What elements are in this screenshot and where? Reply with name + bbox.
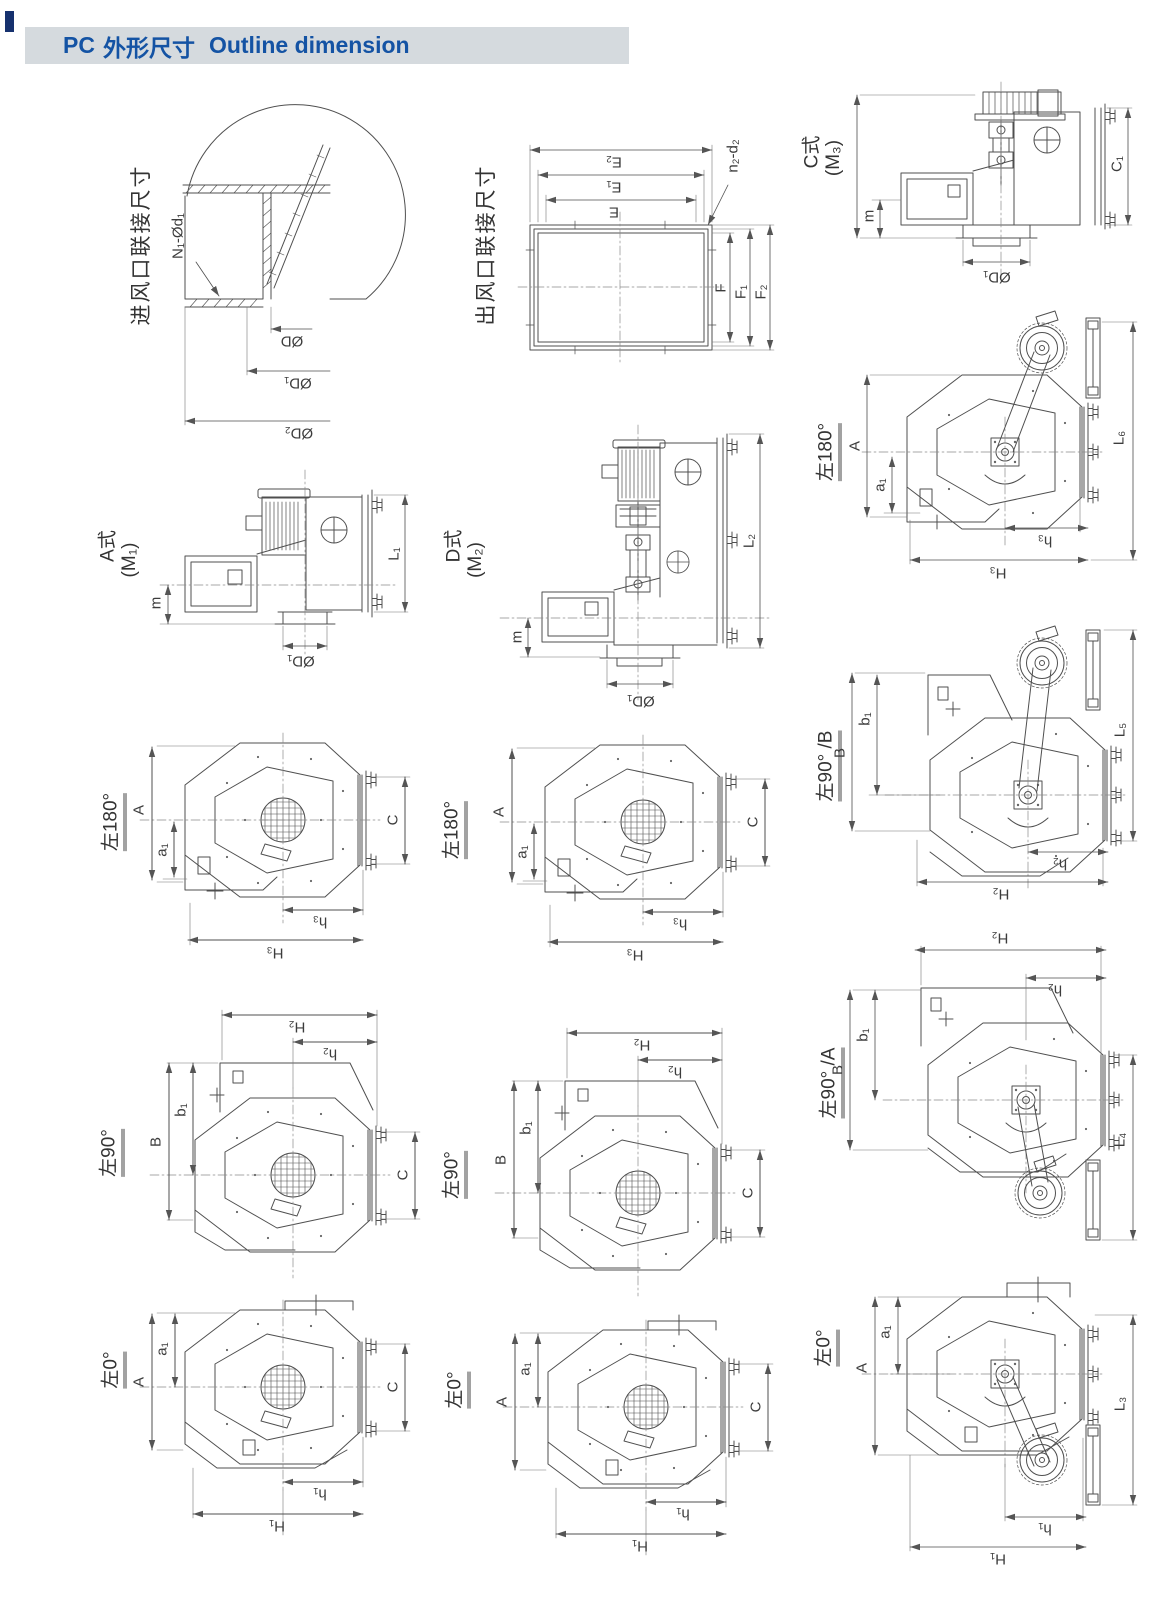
- diagram-left180-front-2: [500, 735, 770, 947]
- diagram-title: 左180°: [811, 423, 842, 481]
- dim-label: h₁: [313, 1486, 326, 1503]
- diagram-type-a: [160, 470, 408, 655]
- dim-label: h₃: [1038, 533, 1052, 550]
- diagram-left90-belt-a: [850, 946, 1137, 1240]
- dim-label: L₅: [1112, 723, 1129, 737]
- dim-label: E₂: [606, 154, 622, 171]
- diagram-subtitle: (M₃): [823, 140, 845, 176]
- dim-label: C: [740, 1188, 757, 1199]
- diagram-title: 左0°: [96, 1351, 127, 1388]
- diagram-title: A式: [93, 530, 120, 562]
- dim-label: a₁: [872, 478, 889, 491]
- dim-label: H₂: [993, 886, 1010, 903]
- dim-label: H₁: [632, 1538, 648, 1555]
- diagram-title: 左90° /A: [814, 1048, 845, 1119]
- dim-label: h₂: [1053, 856, 1067, 873]
- dim-label: m: [509, 631, 526, 644]
- dim-label: L₃: [1112, 1397, 1129, 1411]
- dim-label: H₁: [269, 1518, 285, 1535]
- dim-label: a₁: [514, 845, 531, 858]
- dim-label: ØD₁: [284, 375, 312, 392]
- dim-label: C: [385, 815, 402, 826]
- dim-label: B: [830, 1065, 847, 1075]
- dim-label: L₄: [1112, 1133, 1129, 1147]
- dim-label: h₁: [676, 1506, 689, 1523]
- dim-label: N₁-Ød₁: [170, 213, 187, 259]
- diagram-title: D式: [439, 530, 466, 563]
- diagram-title: C式: [797, 136, 824, 169]
- dim-label: b₁: [173, 1103, 190, 1116]
- dim-label: H₁: [990, 1551, 1006, 1568]
- dim-label: a₁: [154, 1342, 171, 1355]
- dim-label: h₂: [668, 1064, 682, 1081]
- dim-label: a₁: [154, 843, 171, 856]
- dim-label: A: [131, 805, 148, 815]
- dim-label: a₁: [877, 1325, 894, 1338]
- dim-label: h₃: [313, 914, 327, 931]
- dim-label: b₁: [518, 1121, 535, 1134]
- diagram-left0-front-1: [140, 1295, 410, 1535]
- dim-label: h₂: [323, 1046, 337, 1063]
- dim-label: a₁: [517, 1362, 534, 1375]
- dim-label: m: [861, 210, 878, 223]
- catalog-page: PC 外形尺寸 Outline dimension: [0, 0, 1174, 1600]
- dim-label: F₁: [733, 285, 750, 299]
- dim-label: ØD₁: [627, 693, 655, 710]
- dim-label: b₁: [855, 1028, 872, 1041]
- dim-label: L₁: [386, 547, 403, 560]
- dim-label: H₃: [627, 947, 644, 964]
- diagram-left180-belt: [862, 311, 1137, 564]
- dim-label: H₂: [992, 930, 1009, 947]
- diagram-title: 左0°: [809, 1329, 840, 1366]
- dim-label: h₂: [1048, 982, 1062, 999]
- diagram-left0-front-2: [503, 1315, 773, 1555]
- diagram-title: 左90°: [94, 1129, 125, 1177]
- diagram-subtitle: (M₂): [465, 542, 487, 578]
- dim-label: ØD₁: [983, 269, 1011, 286]
- dim-label: E: [609, 204, 619, 221]
- dim-label: H₂: [634, 1037, 651, 1054]
- diagram-title: 左90° /B: [811, 731, 842, 802]
- diagram-left90-front-1: [150, 1010, 420, 1278]
- diagram-title: 左0°: [440, 1371, 471, 1408]
- dim-label: H₂: [289, 1019, 306, 1036]
- diagram-title: 出风口联接尺寸: [470, 165, 500, 326]
- dim-label: C: [395, 1170, 412, 1181]
- dim-label: A: [847, 441, 864, 451]
- dim-label: n₂-d₂: [725, 139, 742, 172]
- dim-label: C: [748, 1402, 765, 1413]
- dim-label: ØD₁: [287, 653, 315, 670]
- diagram-title: 进风口联接尺寸: [125, 165, 155, 326]
- dim-label: b₁: [857, 712, 874, 725]
- dim-label: h₃: [673, 916, 687, 933]
- diagram-left90-belt-b: [852, 626, 1137, 890]
- dim-label: A: [131, 1377, 148, 1387]
- dim-label: B: [493, 1155, 510, 1165]
- dim-label: L₂: [741, 534, 758, 548]
- dim-label: C: [385, 1382, 402, 1393]
- diagram-title: 左90°: [437, 1151, 468, 1199]
- dim-label: C: [745, 817, 762, 828]
- dim-label: F: [713, 283, 730, 292]
- dim-label: ØD: [281, 333, 304, 350]
- diagram-subtitle: (M₁): [119, 543, 141, 578]
- dim-label: F₂: [753, 285, 770, 300]
- diagram-left180-front-1: [140, 733, 410, 945]
- diagram-left0-belt: [862, 1277, 1137, 1551]
- dim-label: h₁: [1038, 1521, 1051, 1538]
- diagram-type-d: [500, 425, 770, 700]
- dim-label: A: [494, 1397, 511, 1407]
- dim-label: H₃: [990, 565, 1007, 582]
- diagram-title: 左180°: [96, 793, 127, 851]
- dim-label: B: [148, 1137, 165, 1147]
- dim-label: B: [832, 748, 849, 758]
- dim-label: H₃: [267, 945, 284, 962]
- dim-label: A: [854, 1363, 871, 1373]
- dim-label: C₁: [1109, 156, 1126, 172]
- diagram-left90-front-2: [495, 1028, 765, 1296]
- diagram-outlet-connection: [518, 145, 774, 362]
- diagram-title: 左180°: [437, 801, 468, 859]
- diagram-type-c: [857, 82, 1132, 280]
- dim-label: ØD₂: [285, 425, 313, 442]
- dim-label: E₁: [606, 179, 621, 196]
- dim-label: m: [148, 597, 165, 610]
- dim-label: L₆: [1111, 431, 1128, 445]
- dim-label: A: [491, 807, 508, 817]
